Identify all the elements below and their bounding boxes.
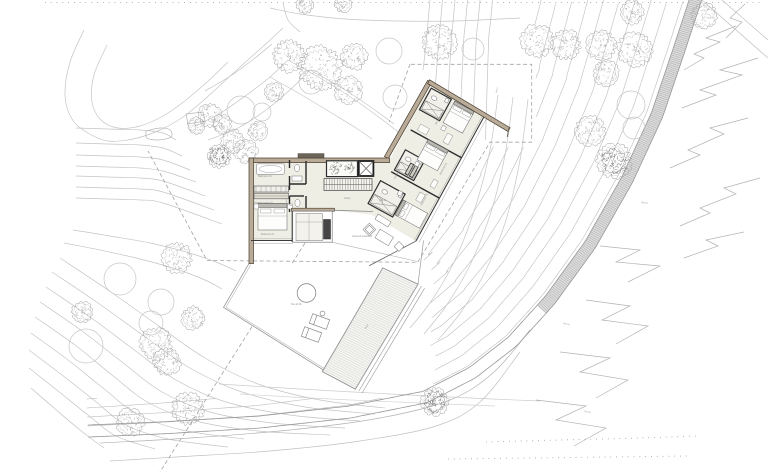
svg-text:Bedroom 01: Bedroom 01 (261, 233, 275, 236)
svg-text:Fire pit 01: Fire pit 01 (291, 303, 302, 306)
svg-text:Vanity: Vanity (344, 197, 351, 200)
svg-text:Covered terrace 01: Covered terrace 01 (352, 235, 373, 238)
svg-text:Hall 01: Hall 01 (379, 199, 387, 202)
svg-text:Bathroom 01: Bathroom 01 (258, 175, 272, 178)
